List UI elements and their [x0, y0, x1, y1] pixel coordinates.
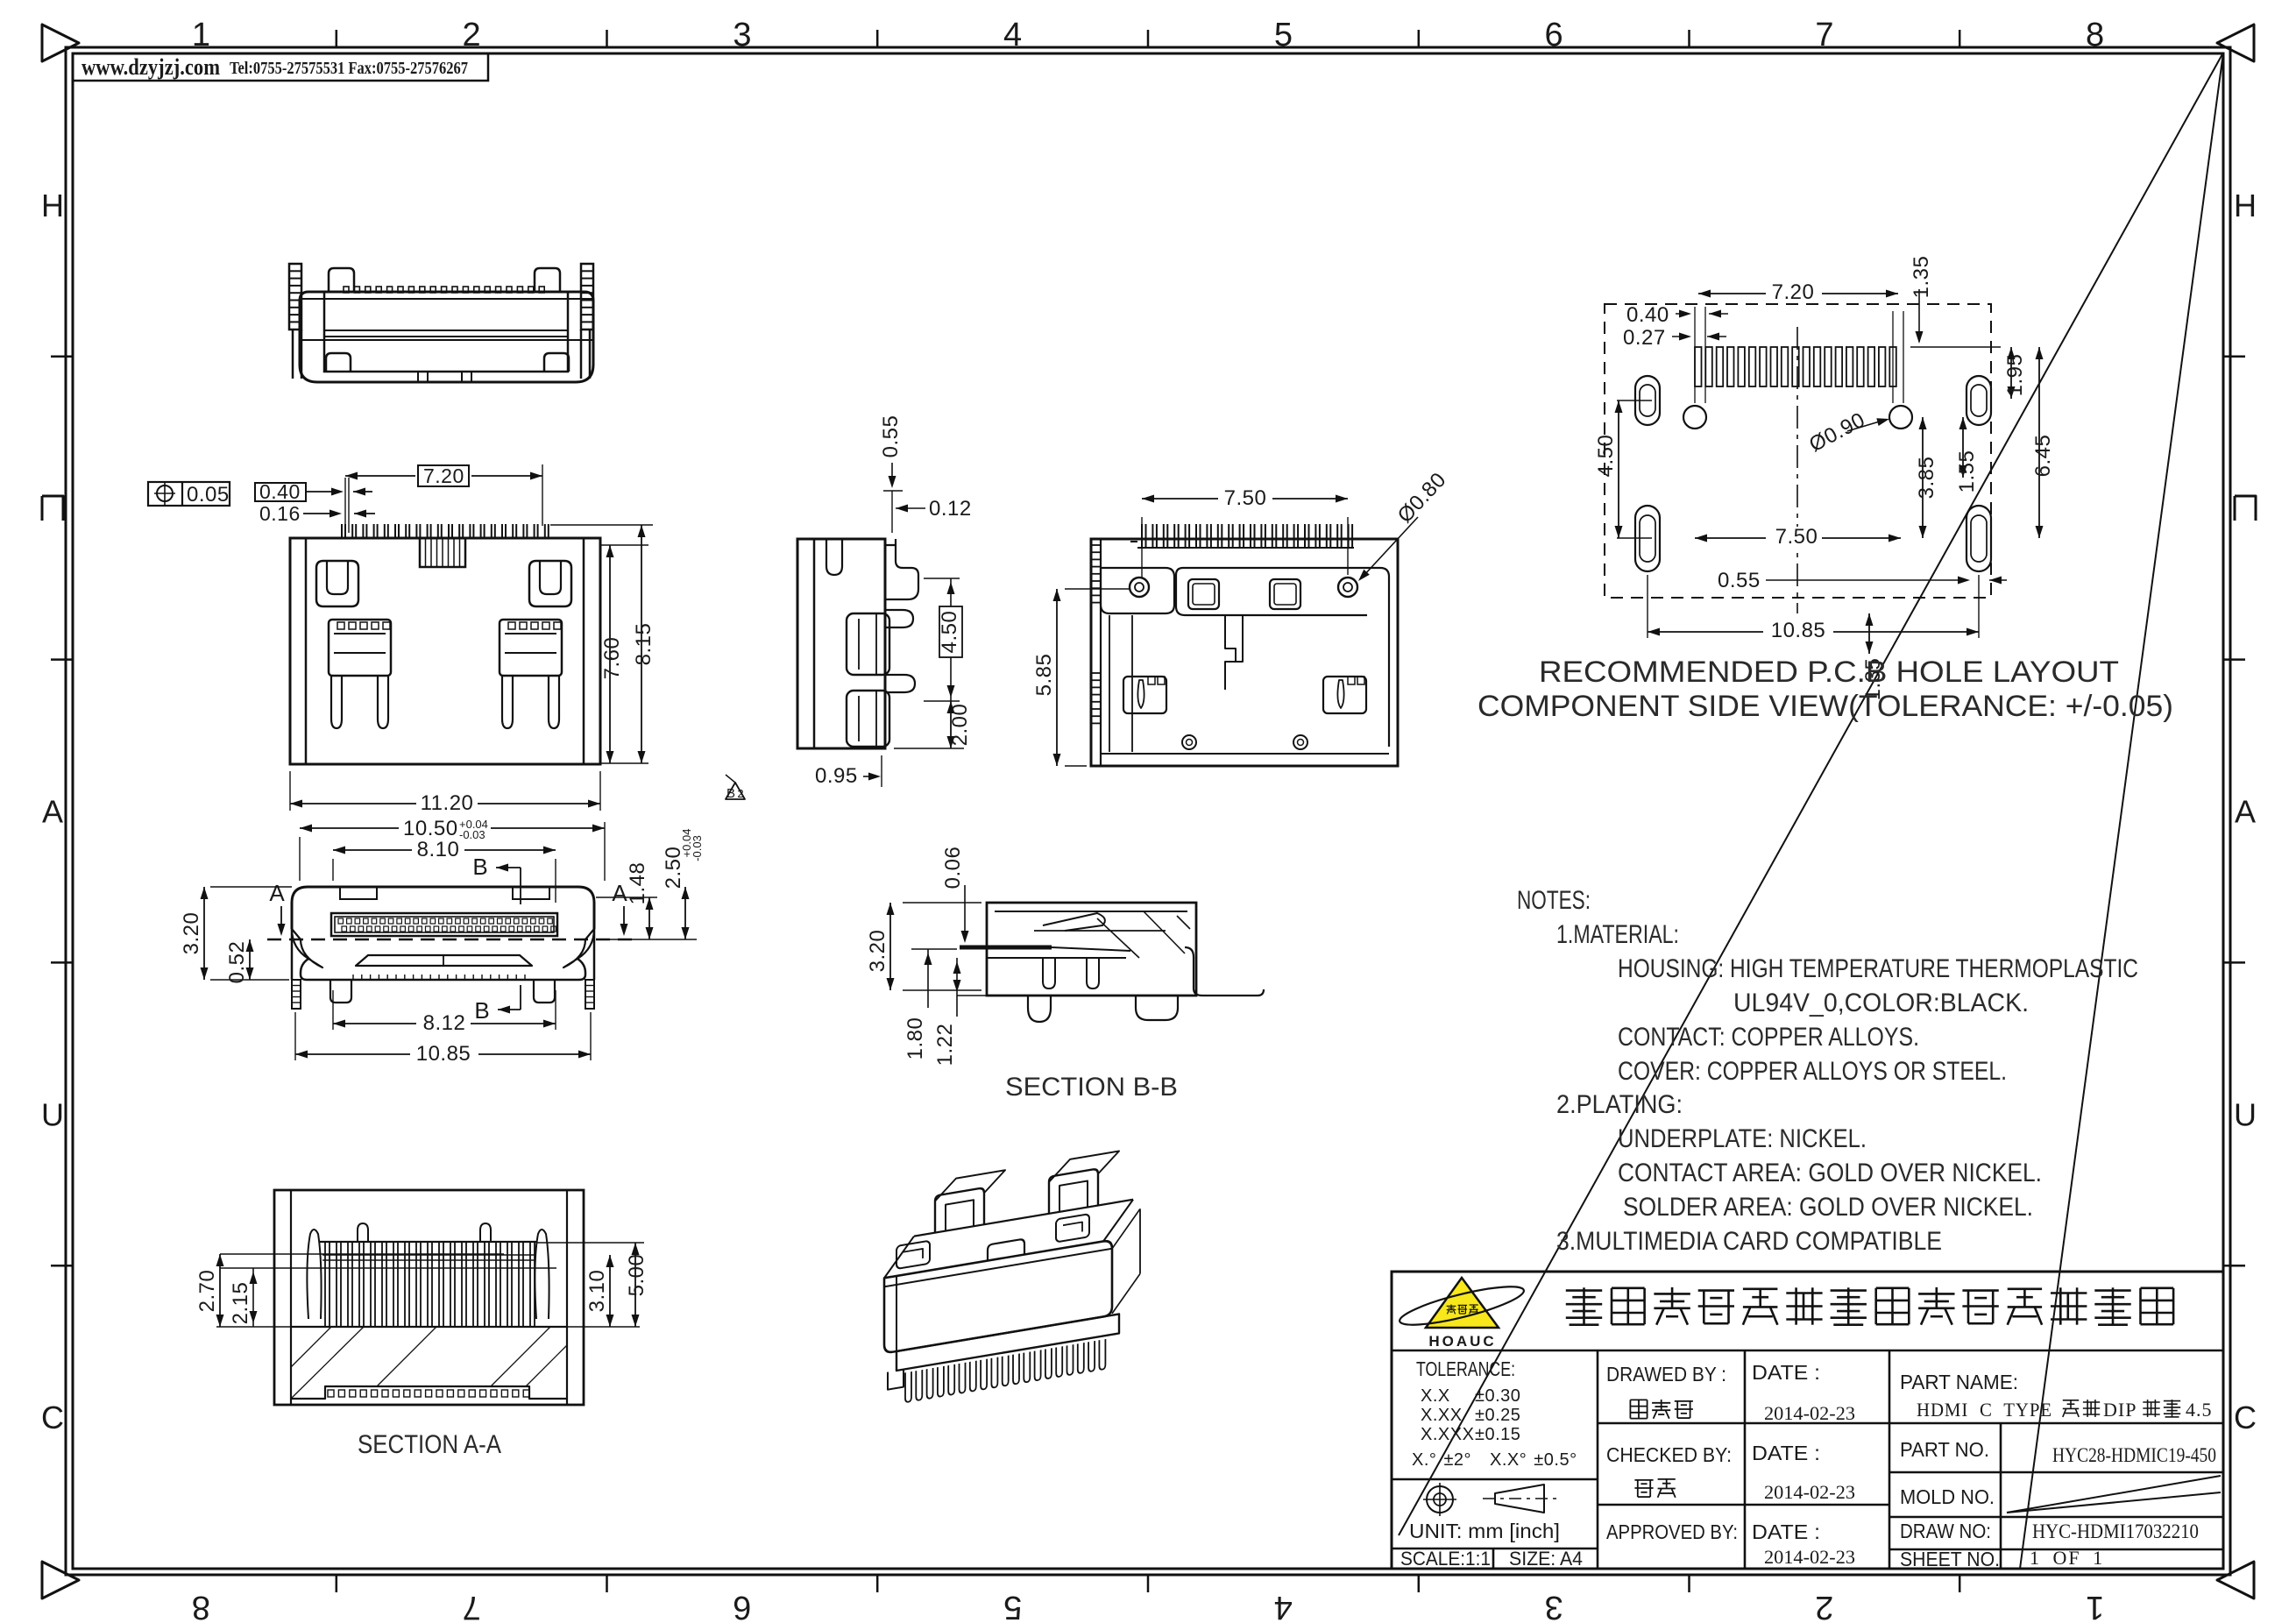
svg-text:2.15: 2.15 [229, 1282, 252, 1325]
svg-text:1.35: 1.35 [1910, 256, 1933, 299]
svg-text:5: 5 [1274, 17, 1293, 53]
svg-text:HDMI C TYPE: HDMI C TYPE [1917, 1399, 2052, 1421]
svg-text:2014-02-23: 2014-02-23 [1764, 1402, 1855, 1424]
svg-text:X.° ±2°: X.° ±2° [1412, 1450, 1471, 1470]
svg-text:A: A [42, 794, 63, 830]
svg-text:3.85: 3.85 [1915, 457, 1938, 500]
svg-text:MOLD NO.: MOLD NO. [1900, 1485, 1995, 1508]
svg-text:2: 2 [1815, 1589, 1833, 1623]
svg-text:C: C [41, 1400, 64, 1435]
svg-text:8.12: 8.12 [423, 1011, 466, 1035]
svg-text:UNIT: mm [inch]: UNIT: mm [inch] [1409, 1520, 1560, 1542]
svg-text:±0.30: ±0.30 [1475, 1386, 1520, 1406]
svg-text:SECTION B-B: SECTION B-B [1005, 1073, 1178, 1102]
svg-text:DRAW NO:: DRAW NO: [1900, 1520, 1991, 1542]
svg-text:2.PLATING:: 2.PLATING: [1556, 1090, 1683, 1119]
svg-text:10.85: 10.85 [1771, 619, 1826, 642]
svg-text:C: C [2234, 1400, 2257, 1435]
svg-text:2.70: 2.70 [195, 1270, 219, 1313]
svg-text:7: 7 [463, 1589, 481, 1623]
svg-text:7.50: 7.50 [1224, 486, 1267, 510]
svg-text:6.45: 6.45 [2031, 435, 2055, 478]
svg-text:X.X: X.X [1421, 1386, 1450, 1406]
svg-text:11.20: 11.20 [421, 791, 474, 815]
svg-text:-0.03: -0.03 [459, 828, 485, 841]
svg-text:1.MATERIAL:: 1.MATERIAL: [1556, 920, 1679, 949]
svg-text:±0.15: ±0.15 [1475, 1425, 1520, 1444]
svg-text:X.XX: X.XX [1421, 1406, 1463, 1425]
svg-text:X.X° ±0.5°: X.X° ±0.5° [1490, 1450, 1577, 1470]
svg-text:DRAWED BY :: DRAWED BY : [1606, 1363, 1726, 1386]
svg-text:U: U [2234, 1096, 2257, 1132]
svg-text:5.00: 5.00 [625, 1254, 648, 1297]
svg-text:SECTION A-A: SECTION A-A [358, 1430, 501, 1459]
svg-text:CHECKED BY:: CHECKED BY: [1606, 1443, 1732, 1466]
svg-text:6: 6 [1545, 17, 1563, 53]
svg-text:0.05: 0.05 [187, 483, 230, 507]
svg-text:8.15: 8.15 [632, 623, 655, 666]
svg-text:3: 3 [1545, 1589, 1563, 1623]
svg-text:X.XXX: X.XXX [1421, 1425, 1474, 1444]
svg-text:7.60: 7.60 [600, 637, 624, 680]
svg-text:2: 2 [463, 17, 481, 53]
svg-text:CONTACT AREA: GOLD OVER NI: CONTACT AREA: GOLD OVER NICKEL. [1618, 1159, 2042, 1187]
svg-text:4: 4 [1003, 17, 1022, 53]
svg-text:7.50: 7.50 [1775, 525, 1818, 549]
svg-text:0.27: 0.27 [1623, 326, 1666, 350]
svg-text:0.06: 0.06 [941, 847, 965, 889]
svg-text:2: 2 [737, 787, 743, 800]
svg-text:APPROVED BY:: APPROVED BY: [1606, 1520, 1738, 1543]
svg-text:8: 8 [2086, 17, 2104, 53]
svg-text:H: H [2234, 188, 2257, 223]
svg-text:5: 5 [1003, 1589, 1022, 1623]
svg-text:0.52: 0.52 [225, 941, 249, 984]
svg-text:7: 7 [1815, 17, 1833, 53]
svg-text:7.20: 7.20 [423, 464, 464, 487]
svg-text:1.22: 1.22 [933, 1024, 957, 1067]
svg-text:A: A [2235, 794, 2256, 830]
svg-text:4.50: 4.50 [1594, 435, 1618, 478]
svg-text:10.85: 10.85 [416, 1042, 471, 1066]
svg-text:8.10: 8.10 [417, 838, 460, 861]
svg-text:B: B [726, 786, 735, 801]
svg-text:3.MULTIMEDIA CARD COMPATIBLE: 3.MULTIMEDIA CARD COMPATIBLE [1556, 1227, 1942, 1256]
svg-text:COVER: COPPER ALLOYS OR ST: COVER: COPPER ALLOYS OR STEEL. [1618, 1057, 2007, 1086]
svg-text:DATE :: DATE : [1752, 1361, 1820, 1384]
svg-text:1.95: 1.95 [2003, 354, 2027, 397]
svg-text:6: 6 [733, 1589, 751, 1623]
svg-text:0.40: 0.40 [259, 480, 301, 503]
svg-text:±0.25: ±0.25 [1475, 1406, 1520, 1425]
svg-text:0.40: 0.40 [1626, 303, 1669, 327]
svg-text:3.20: 3.20 [180, 912, 203, 955]
svg-text:HYC28-HDMIC19-450: HYC28-HDMIC19-450 [2052, 1444, 2216, 1466]
svg-text:HYC-HDMI17032210: HYC-HDMI17032210 [2032, 1520, 2199, 1542]
svg-text:RECOMMENDED P.C.B HOLE LAYO: RECOMMENDED P.C.B HOLE LAYOUT [1539, 656, 2119, 689]
svg-text:SOLDER AREA: GOLD OVER NIC: SOLDER AREA: GOLD OVER NICKEL. [1623, 1193, 2033, 1222]
svg-text:10.50: 10.50 [403, 817, 458, 840]
svg-text:2014-02-23: 2014-02-23 [1764, 1481, 1855, 1503]
svg-text:1.48: 1.48 [626, 862, 649, 905]
svg-text:4: 4 [1274, 1589, 1293, 1623]
svg-text:DATE :: DATE : [1752, 1442, 1820, 1464]
svg-text:2014-02-23: 2014-02-23 [1764, 1546, 1855, 1568]
svg-text:7.20: 7.20 [1772, 280, 1815, 304]
svg-text:0.55: 0.55 [879, 415, 903, 458]
svg-text:DIP: DIP [2103, 1399, 2137, 1421]
svg-text:1: 1 [192, 17, 210, 53]
svg-text:0.95: 0.95 [815, 764, 858, 788]
svg-text:-0.03: -0.03 [691, 835, 704, 861]
svg-text:8: 8 [192, 1589, 210, 1623]
svg-text:SHEET NO.: SHEET NO. [1900, 1548, 2000, 1570]
svg-text:Tel:0755-27575531 Fax:0755-27: Tel:0755-27575531 Fax:0755-27576267 [230, 59, 468, 78]
svg-text:1: 1 [2086, 1589, 2104, 1623]
svg-text:PART NO.: PART NO. [1900, 1438, 1989, 1461]
svg-text:3: 3 [733, 17, 751, 53]
svg-text:2.00: 2.00 [948, 704, 972, 747]
svg-text:3.10: 3.10 [585, 1270, 609, 1313]
svg-text:COMPONENT SIDE VIEW(TOLERANC: COMPONENT SIDE VIEW(TOLERANCE: +/-0.05) [1478, 690, 2173, 723]
svg-text:PART NAME:: PART NAME: [1900, 1371, 2018, 1393]
svg-text:SCALE:1:1: SCALE:1:1 [1400, 1548, 1491, 1570]
svg-text:4.5: 4.5 [2186, 1399, 2213, 1421]
svg-text:5.85: 5.85 [1032, 654, 1056, 697]
svg-text:U: U [41, 1096, 64, 1132]
svg-text:B: B [474, 997, 489, 1024]
svg-text:1.80: 1.80 [904, 1017, 927, 1060]
svg-text:0.16: 0.16 [259, 502, 301, 525]
svg-text:DATE :: DATE : [1752, 1520, 1820, 1543]
svg-text:HOUSING: HIGH TEMPERATURE T: HOUSING: HIGH TEMPERATURE THERMOPLASTIC [1618, 954, 2138, 983]
svg-text:UL94V_0,COLOR:BLACK.: UL94V_0,COLOR:BLACK. [1733, 989, 2029, 1017]
svg-text:0.55: 0.55 [1718, 569, 1761, 592]
svg-text:H: H [41, 188, 64, 223]
svg-text:3.20: 3.20 [866, 930, 889, 973]
svg-text:1 OF 1: 1 OF 1 [2030, 1547, 2104, 1569]
svg-text:A: A [269, 880, 285, 906]
svg-text:SIZE: A4: SIZE: A4 [1509, 1548, 1583, 1570]
svg-text:TOLERANCE:: TOLERANCE: [1416, 1357, 1515, 1380]
svg-text:CONTACT: COPPER ALLOYS.: CONTACT: COPPER ALLOYS. [1618, 1023, 1919, 1052]
svg-text:www.dzyjzj.com: www.dzyjzj.com [81, 54, 220, 80]
svg-text:HOAUC: HOAUC [1428, 1333, 1496, 1350]
svg-text:0.12: 0.12 [929, 497, 972, 521]
svg-text:1.55: 1.55 [1955, 450, 1979, 493]
svg-text:NOTES:: NOTES: [1517, 886, 1591, 915]
svg-text:UNDERPLATE: NICKEL.: UNDERPLATE: NICKEL. [1618, 1124, 1867, 1153]
svg-text:B: B [472, 854, 487, 880]
svg-text:4.50: 4.50 [938, 611, 961, 654]
